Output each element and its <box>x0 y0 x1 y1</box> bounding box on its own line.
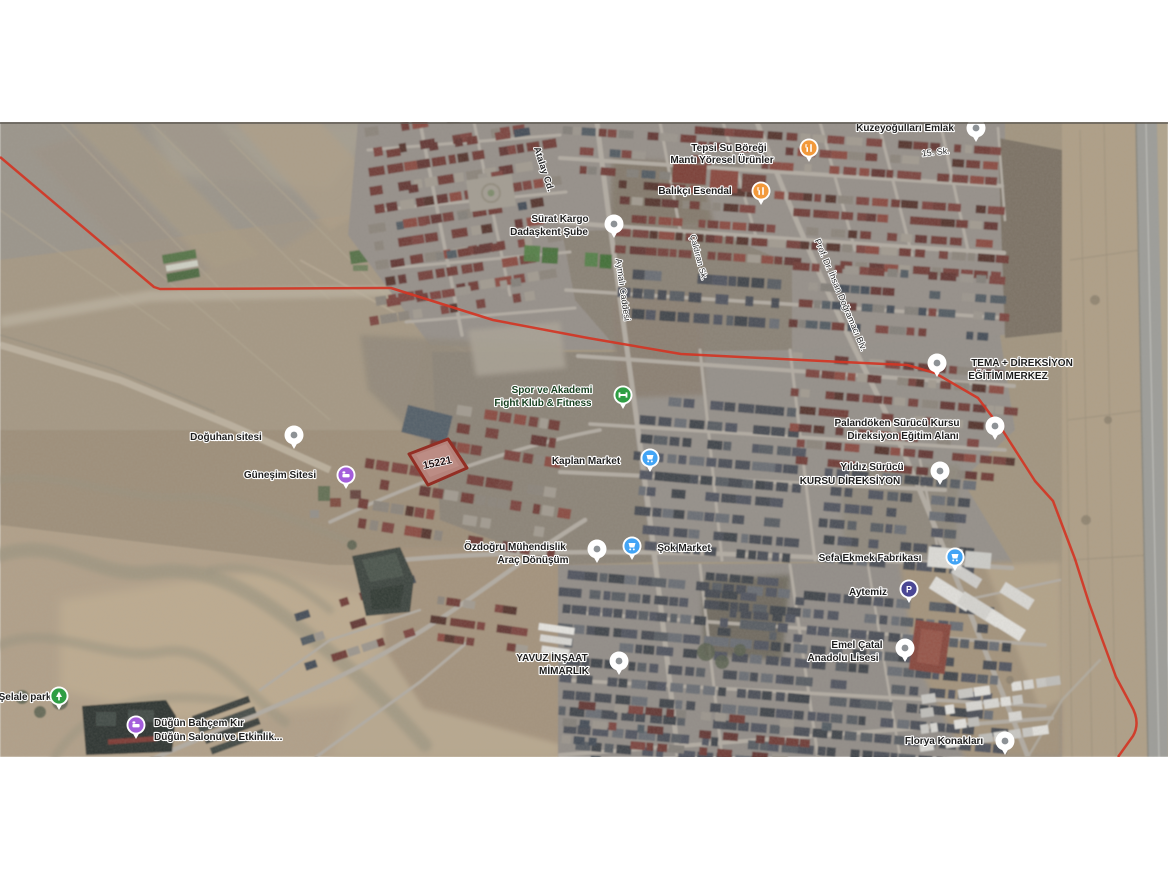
svg-text:EĞİTİM MERKEZ: EĞİTİM MERKEZ <box>968 369 1047 382</box>
svg-text:Şelale park: Şelale park <box>0 692 52 703</box>
svg-text:Fight Klub & Fitness: Fight Klub & Fitness <box>494 398 592 409</box>
svg-text:Sefa Ekmek Fabrikası: Sefa Ekmek Fabrikası <box>819 553 922 564</box>
svg-text:Düğün Salonu ve Etkinlik...: Düğün Salonu ve Etkinlik... <box>154 732 283 743</box>
svg-text:Tepsi Su Böreği: Tepsi Su Böreği <box>691 143 767 154</box>
svg-text:Emel Çatal: Emel Çatal <box>831 640 882 651</box>
svg-text:Aytemiz: Aytemiz <box>849 587 887 598</box>
svg-text:Balıkçı Esendal: Balıkçı Esendal <box>658 186 732 197</box>
svg-text:Dadaşkent Şube: Dadaşkent Şube <box>510 227 588 238</box>
svg-text:Spor ve Akademi: Spor ve Akademi <box>512 385 593 396</box>
svg-text:Florya Konakları: Florya Konakları <box>905 736 984 747</box>
svg-text:Sürat Kargo: Sürat Kargo <box>531 214 588 225</box>
svg-text:Güneşim Sitesi: Güneşim Sitesi <box>244 470 316 481</box>
svg-text:Yıldız Sürücü: Yıldız Sürücü <box>840 462 903 473</box>
svg-text:P: P <box>906 584 912 594</box>
svg-text:Doğuhan sitesi: Doğuhan sitesi <box>190 432 262 443</box>
svg-text:Direksiyon Eğitim Alanı: Direksiyon Eğitim Alanı <box>847 431 959 442</box>
svg-text:Düğün Bahçem Kır: Düğün Bahçem Kır <box>154 718 244 729</box>
svg-text:Özdoğru Mühendislik: Özdoğru Mühendislik <box>464 540 566 553</box>
svg-text:YAVUZ İNŞAAT: YAVUZ İNŞAAT <box>516 651 588 664</box>
svg-text:Kaplan Market: Kaplan Market <box>552 456 621 467</box>
svg-text:Anadolu Lisesi: Anadolu Lisesi <box>807 653 878 664</box>
svg-text:MİMARLIK: MİMARLIK <box>539 664 590 677</box>
svg-text:Palandöken Sürücü Kursu: Palandöken Sürücü Kursu <box>834 418 959 429</box>
svg-text:Araç Dönüşüm: Araç Dönüşüm <box>497 555 568 566</box>
svg-text:KURSU DİREKSİYON: KURSU DİREKSİYON <box>800 474 901 487</box>
svg-text:TEMA + DİREKSİYON: TEMA + DİREKSİYON <box>971 356 1073 369</box>
svg-text:Kuzeyoğulları Emlak: Kuzeyoğulları Emlak <box>856 123 954 134</box>
svg-text:Mantı Yöresel Ürünler: Mantı Yöresel Ürünler <box>670 153 773 166</box>
svg-text:Şok Market: Şok Market <box>657 543 711 554</box>
